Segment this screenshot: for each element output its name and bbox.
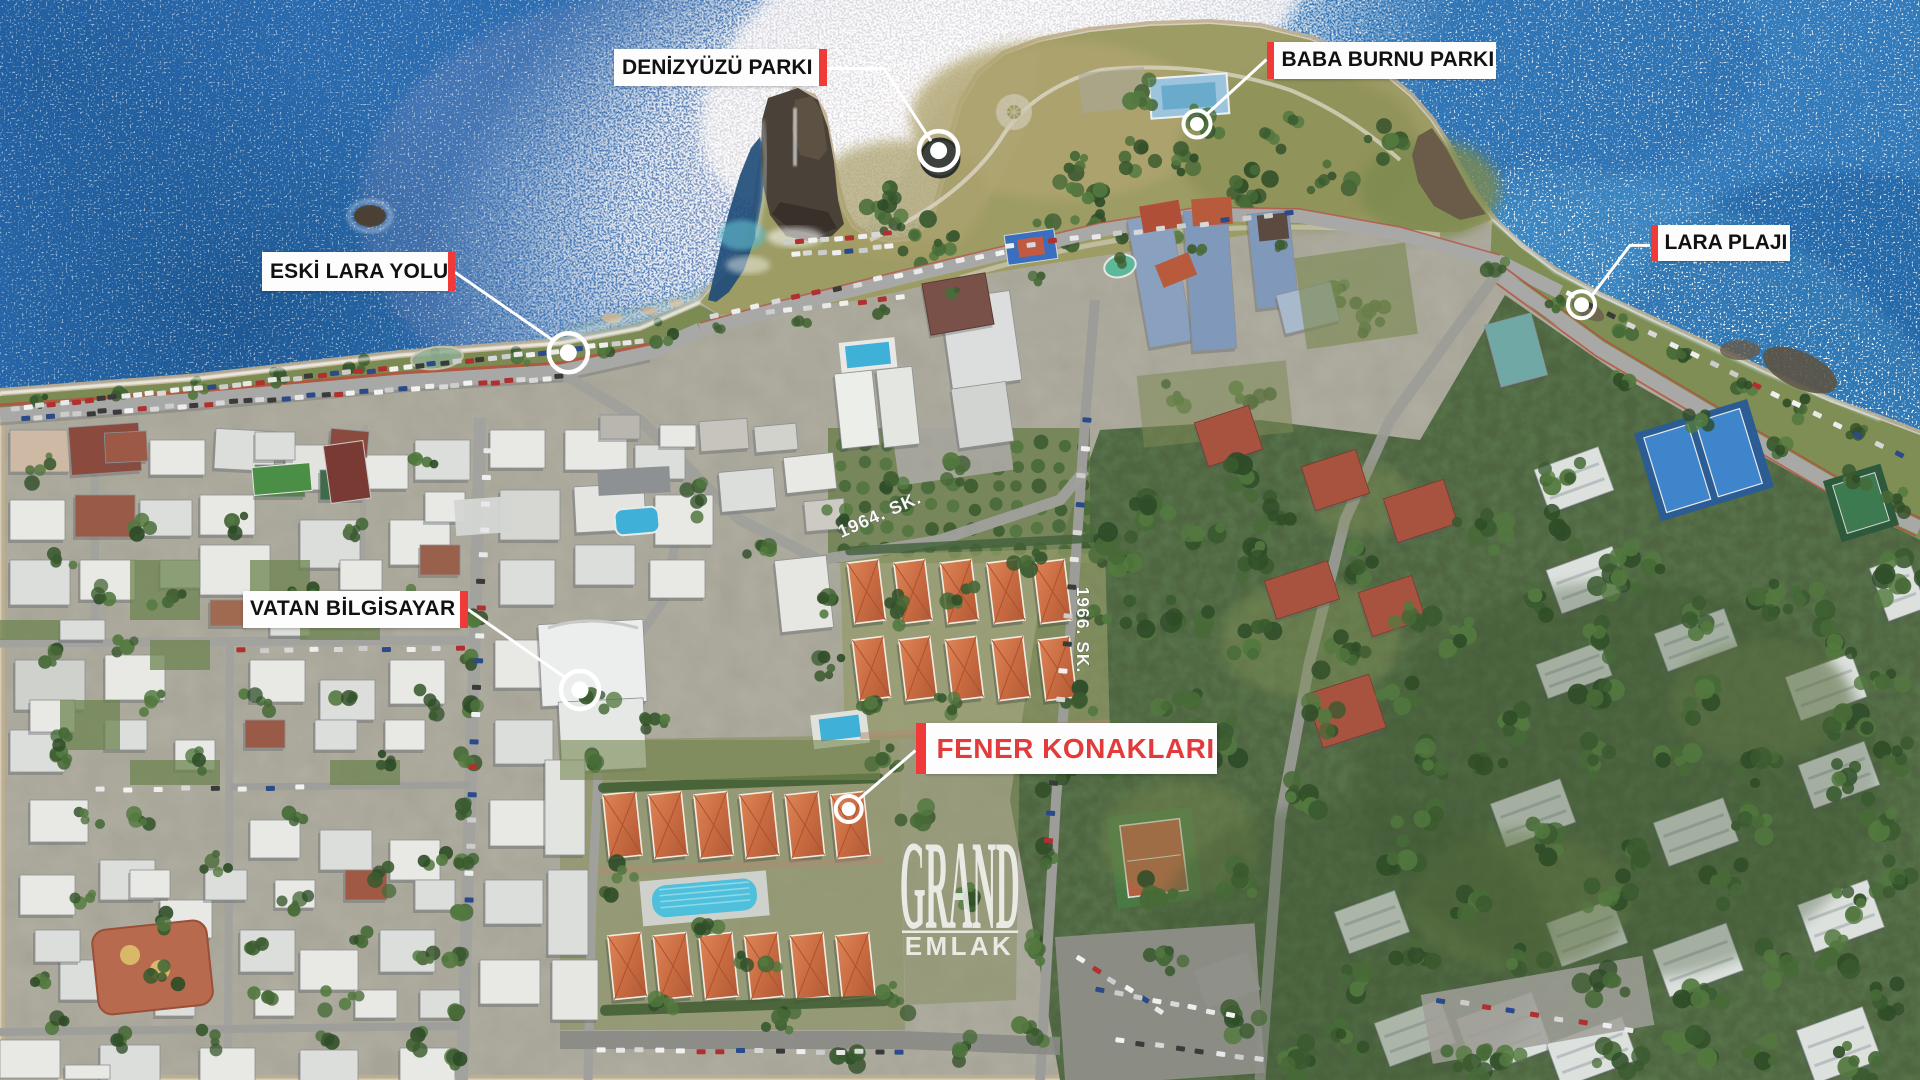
svg-text:EMLAK: EMLAK	[905, 931, 1014, 961]
svg-text:1966. SK.: 1966. SK.	[1073, 587, 1093, 674]
